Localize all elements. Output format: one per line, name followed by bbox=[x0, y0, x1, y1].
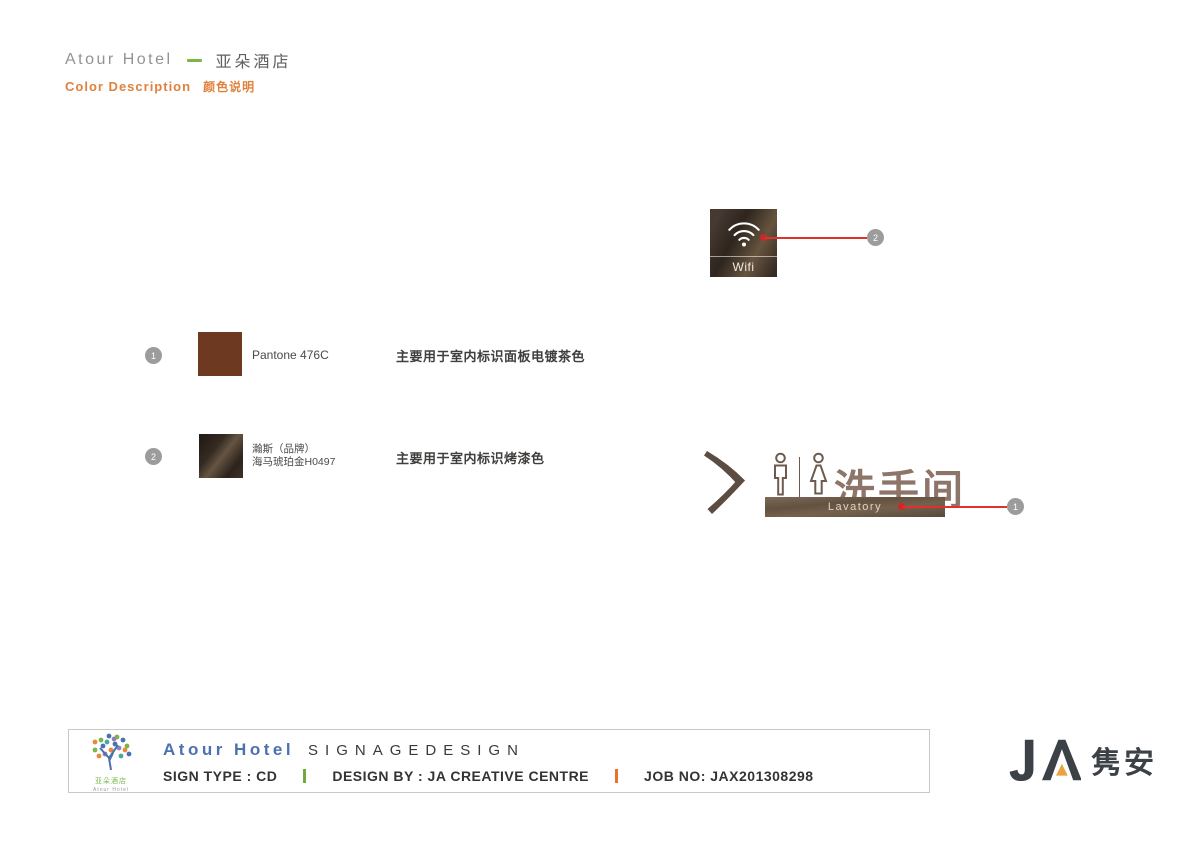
footer-divider-green bbox=[303, 769, 306, 783]
swatch1-description: 主要用于室内标识面板电镀茶色 bbox=[396, 346, 585, 365]
footer-divider-orange bbox=[615, 769, 618, 783]
swatch1-number-badge: 1 bbox=[145, 347, 162, 364]
color-description-sheet: Atour Hotel 亚朵酒店 Color Description 颜色说明 … bbox=[0, 0, 1200, 849]
wifi-callout-badge: 2 bbox=[867, 229, 884, 246]
atour-tree-icon bbox=[87, 732, 135, 770]
ja-logo-cn: 隽安 bbox=[1091, 738, 1157, 782]
swatch2-description: 主要用于室内标识烤漆色 bbox=[396, 448, 545, 467]
lavatory-callout-badge: 1 bbox=[1007, 498, 1024, 515]
wifi-icon bbox=[723, 217, 765, 249]
section-title-cn: 颜色说明 bbox=[203, 78, 255, 95]
lavatory-figures bbox=[767, 452, 832, 498]
atour-logo: 亚朵酒店 Atour Hotel bbox=[84, 732, 138, 793]
footer-brand: Atour Hotel bbox=[163, 740, 294, 760]
section-title-en: Color Description bbox=[65, 79, 191, 94]
swatch2-name-line1: 瀚斯（品牌） bbox=[252, 443, 335, 456]
section-title: Color Description 颜色说明 bbox=[65, 78, 255, 95]
brand-dash-icon bbox=[187, 59, 202, 62]
brand-name-cn: 亚朵酒店 bbox=[216, 48, 292, 72]
swatch2-name-line2: 海马琥珀金H0497 bbox=[252, 456, 335, 469]
swatch2-name: 瀚斯（品牌） 海马琥珀金H0497 bbox=[252, 443, 335, 469]
swatch1-name: Pantone 476C bbox=[252, 348, 329, 362]
footer-job-no: JOB NO: JAX201308298 bbox=[644, 768, 814, 784]
swatch2-color-chip bbox=[199, 434, 243, 478]
wifi-sign-sample: Wifi bbox=[710, 209, 777, 277]
ja-creative-logo: 隽安 bbox=[1003, 738, 1157, 782]
swatch2-number-badge: 2 bbox=[145, 448, 162, 465]
wifi-callout-line bbox=[765, 237, 867, 239]
footer-meta-line: SIGN TYPE : CD DESIGN BY : JA CREATIVE C… bbox=[163, 768, 814, 784]
wifi-sign-icon-area bbox=[710, 209, 777, 257]
ja-monogram-icon bbox=[1003, 738, 1081, 782]
swatch1-color-chip bbox=[198, 332, 242, 376]
footer-sign-type: SIGN TYPE : CD bbox=[163, 768, 277, 784]
lavatory-callout-line bbox=[903, 506, 1007, 508]
lavatory-label-en: Lavatory bbox=[828, 501, 882, 513]
footer-title: SIGNAGEDESIGN bbox=[308, 742, 525, 759]
wifi-sign-label: Wifi bbox=[710, 257, 777, 277]
brand-name-en: Atour Hotel bbox=[65, 51, 173, 69]
atour-logo-cn: 亚朵酒店 bbox=[84, 776, 138, 786]
footer-design-by: DESIGN BY : JA CREATIVE CENTRE bbox=[332, 768, 589, 784]
atour-logo-en: Atour Hotel bbox=[84, 787, 138, 793]
footer-title-line: Atour Hotel SIGNAGEDESIGN bbox=[163, 740, 525, 760]
lavatory-chevron-icon bbox=[703, 451, 747, 520]
woman-icon bbox=[805, 452, 832, 498]
figure-divider bbox=[799, 457, 800, 497]
header-brand: Atour Hotel 亚朵酒店 bbox=[65, 48, 292, 72]
man-icon bbox=[767, 452, 794, 498]
